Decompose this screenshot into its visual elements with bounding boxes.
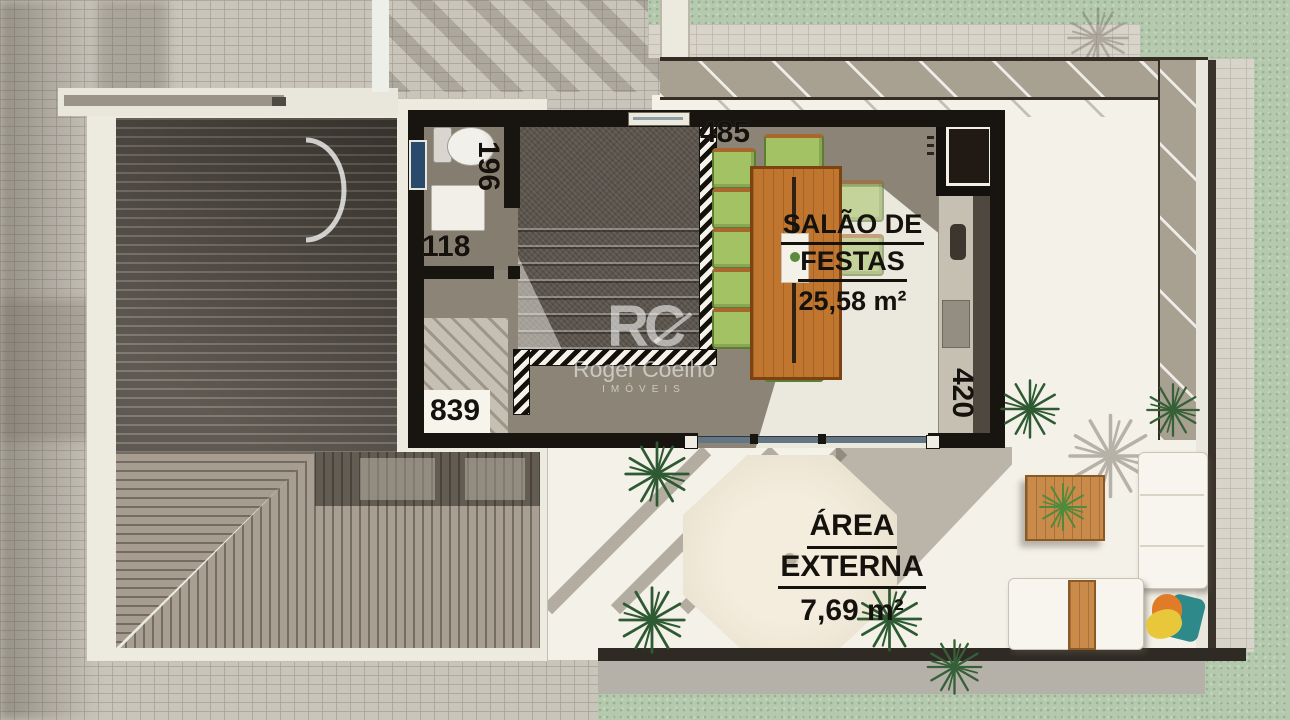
- grass-right: [1254, 0, 1290, 720]
- void-hatch-left: [514, 350, 529, 414]
- counter-detail: [927, 152, 934, 155]
- appliance-icon: [942, 300, 970, 348]
- dimension-839: 839: [430, 394, 480, 428]
- dimension-196: 196: [466, 124, 510, 208]
- watermark-subtitle: IMÓVEIS: [544, 385, 744, 395]
- dimension-420: 420: [940, 350, 984, 436]
- watermark-logo: RC: [544, 298, 744, 356]
- door-stub: [508, 266, 520, 279]
- palm-icon: [612, 585, 692, 655]
- wall-right-outer: [1208, 60, 1216, 660]
- beam-end-cap: [272, 97, 286, 106]
- paver-path-right: [1214, 58, 1258, 698]
- dimension-118: 118: [422, 230, 470, 264]
- window-bathroom: [409, 140, 427, 190]
- sliding-glass-door: [694, 436, 932, 443]
- palm-icon: [922, 638, 987, 696]
- wall-edge-top: [372, 0, 389, 92]
- room-name-line1: ÁREA: [807, 508, 896, 549]
- room-name-line1: SALÃO DE: [781, 208, 925, 245]
- room-name-line2: FESTAS: [798, 245, 907, 282]
- palm-icon: [995, 378, 1065, 440]
- wall-bathroom-bottom: [408, 266, 494, 279]
- dimension-196-text: 196: [471, 141, 505, 191]
- salao-de-festas-label: SALÃO DE FESTAS 25,58 m²: [770, 208, 935, 318]
- sofa-arm-table: [1068, 580, 1096, 650]
- room-area: 7,69 m²: [800, 593, 903, 630]
- ground-shadow: [388, 0, 660, 92]
- grass-bottom: [598, 694, 1290, 720]
- sofa-cushion-line: [1140, 494, 1204, 496]
- door-jamb: [926, 435, 940, 449]
- light-gap: [360, 458, 435, 500]
- bar-counter-top: [946, 126, 992, 186]
- dimension-420-text: 420: [945, 368, 979, 418]
- door-mullion: [750, 434, 758, 444]
- parapet-top: [660, 57, 1208, 100]
- door-mullion: [818, 434, 826, 444]
- counter-detail: [927, 144, 934, 147]
- ground-shadow: [0, 300, 95, 440]
- window-glass: [633, 117, 683, 120]
- sofa-cushion-line: [1140, 545, 1204, 547]
- hanging-chair-icon: [296, 134, 356, 246]
- palm-icon: [1142, 382, 1204, 438]
- watermark-name: Roger Coelho: [544, 358, 744, 381]
- area-externa-label: ÁREA EXTERNA 7,69 m²: [768, 508, 936, 630]
- sink-icon: [950, 224, 966, 260]
- counter-detail: [927, 136, 934, 139]
- pergola-beam: [64, 95, 284, 106]
- window-top: [628, 112, 690, 126]
- grass-bottom-right: [1205, 652, 1290, 720]
- room-area: 25,58 m²: [798, 285, 906, 318]
- outdoor-sofa-vertical: [1138, 452, 1208, 589]
- room-name-line2: EXTERNA: [778, 549, 925, 590]
- potted-plant-icon: [1035, 482, 1091, 532]
- dimension-485: 485: [700, 116, 750, 150]
- palm-icon: [618, 440, 696, 508]
- watermark: RC Roger Coelho IMÓVEIS: [544, 298, 744, 395]
- light-gap: [465, 458, 525, 500]
- floor-plan-canvas: 485 196 118 839 420 SALÃO DE FESTAS 25,5…: [0, 0, 1290, 720]
- deck-shadow-band: [315, 452, 540, 506]
